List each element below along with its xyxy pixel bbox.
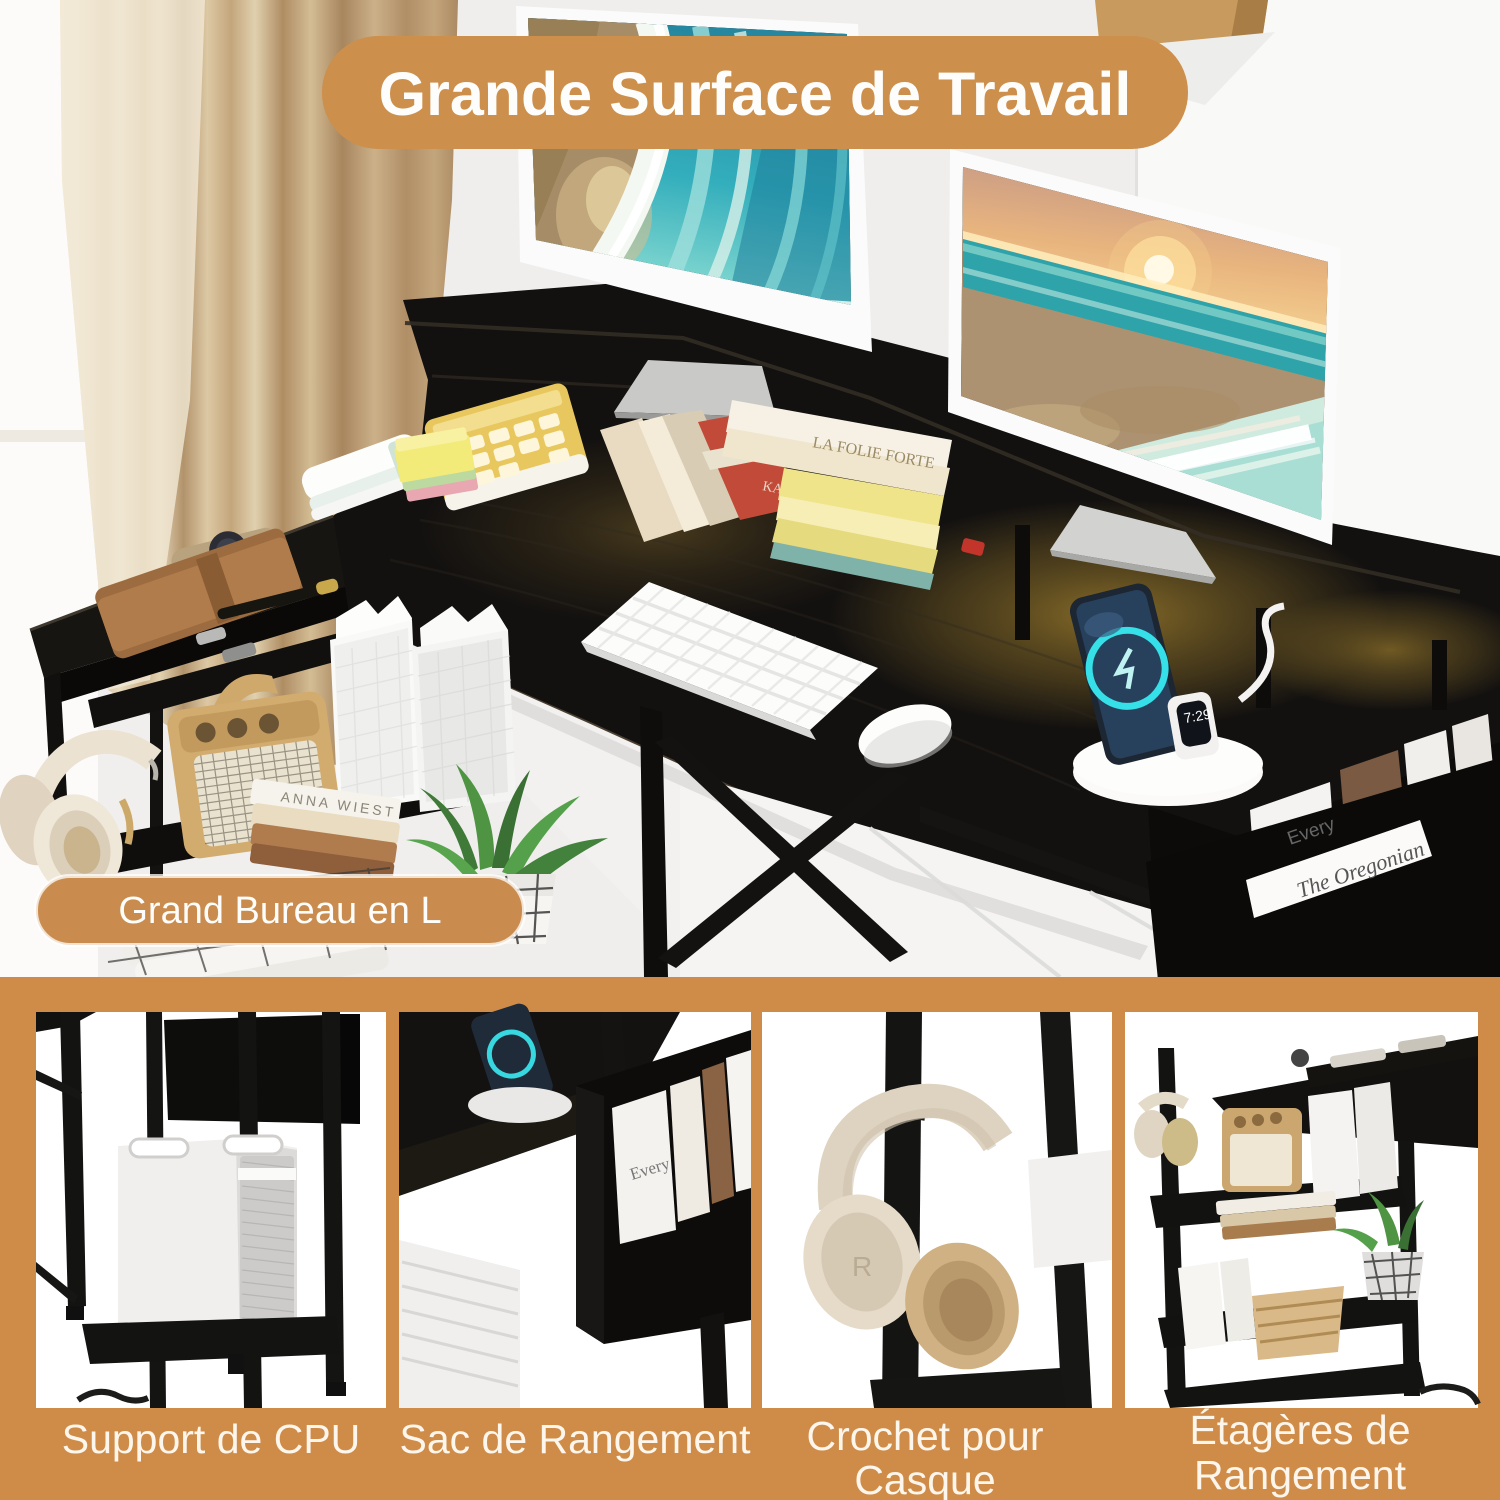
svg-text:Sac de Rangement: Sac de Rangement bbox=[399, 1416, 751, 1462]
svg-text:Rangement: Rangement bbox=[1194, 1452, 1407, 1498]
svg-text:Support de CPU: Support de CPU bbox=[62, 1416, 361, 1462]
svg-text:Grand Bureau en L: Grand Bureau en L bbox=[118, 890, 441, 932]
svg-text:Casque: Casque bbox=[854, 1457, 995, 1500]
svg-text:Grande Surface de Travail: Grande Surface de Travail bbox=[379, 60, 1132, 128]
svg-text:Étagères de: Étagères de bbox=[1189, 1407, 1410, 1453]
svg-text:Crochet pour: Crochet pour bbox=[806, 1413, 1043, 1459]
svg-text:R: R bbox=[852, 1251, 872, 1282]
